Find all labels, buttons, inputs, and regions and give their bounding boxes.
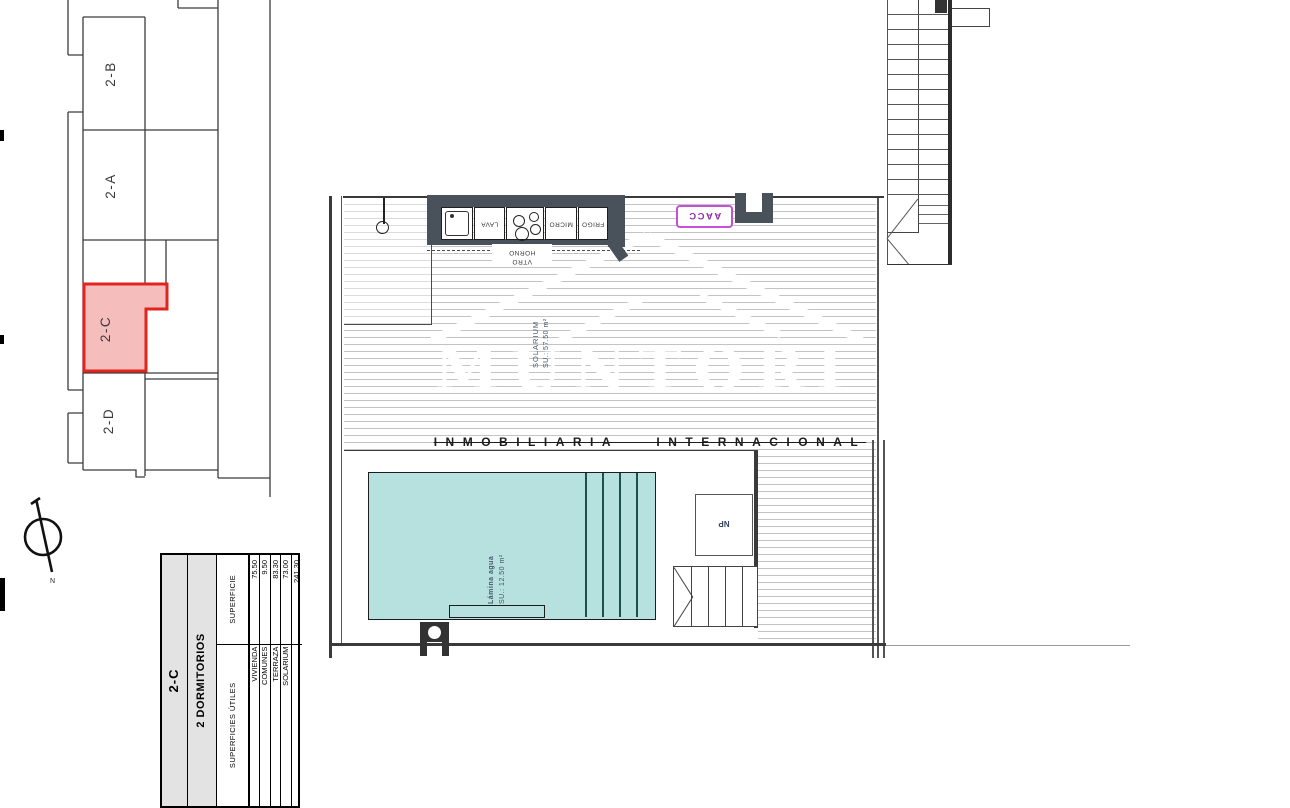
stair-divider xyxy=(918,0,919,233)
row-label: COMUNES xyxy=(260,644,269,806)
solarium-name: SOLARIUM xyxy=(530,284,541,368)
floor-plan-sheet: 2-B 2-A 2-C 2-D N MUNTORI INMOBILIARIA I… xyxy=(0,0,1290,698)
table-row: SOLARIUM 73.00 xyxy=(281,555,291,806)
staircase xyxy=(887,0,992,266)
pool-annotation: Lámina agua SU.: 12.50 m² xyxy=(486,516,510,604)
edge-mark xyxy=(0,578,5,611)
solarium-annotation: SOLARIUM SU.: 57.50 m² xyxy=(530,284,556,368)
ac-unit: AACC xyxy=(676,205,733,228)
key-unit-2a-label: 2-A xyxy=(103,173,118,199)
ac-unit-label: AACC xyxy=(678,210,731,221)
table-row-bedrooms: 2 DORMITORIOS xyxy=(188,555,217,806)
row-label xyxy=(292,644,302,806)
stair-left-wall xyxy=(887,0,888,265)
pool xyxy=(368,472,656,620)
stair-tread xyxy=(887,89,948,90)
stair-tread xyxy=(887,29,948,30)
wall-bottom xyxy=(329,643,886,646)
table-header-row: SUPERFICIES ÚTILES SUPERFICIE xyxy=(217,555,250,806)
edge-mark xyxy=(0,335,4,344)
kitchen-counter-top xyxy=(427,195,625,207)
vtro-label: VTRO xyxy=(492,257,552,266)
lamp-icon xyxy=(376,221,389,234)
pool-area: SU.: 12.50 m² xyxy=(497,516,508,604)
stair-tread xyxy=(887,74,948,75)
unit-2c-highlight xyxy=(84,284,167,371)
surface-table: 2-C 2 DORMITORIOS SUPERFICIES ÚTILES SUP… xyxy=(160,553,300,808)
shaft-opening xyxy=(746,193,762,212)
key-unit-2b-label: 2-B xyxy=(103,61,118,87)
row-label: TERRAZA xyxy=(271,644,280,806)
table-row: VIVIENDA 75.50 xyxy=(250,555,260,806)
burner-icon xyxy=(529,212,539,222)
shower-leg xyxy=(420,642,427,656)
shower-leg xyxy=(442,642,449,656)
stair-tread xyxy=(708,567,709,626)
solarium-area: SU.: 57.50 m² xyxy=(541,284,552,368)
stair-top-notch xyxy=(952,8,990,27)
terrace-corner-box xyxy=(344,198,432,325)
key-plan-outline xyxy=(68,0,270,497)
stair-tread xyxy=(742,567,743,626)
pool-step-line xyxy=(636,473,638,617)
stair-tread xyxy=(887,119,948,120)
wall-right-1 xyxy=(872,440,874,658)
stair-right-wall xyxy=(948,0,952,265)
row-value: 241.30 xyxy=(292,555,302,644)
stair-bottom-line xyxy=(887,264,952,265)
wall-left-outer xyxy=(329,196,332,658)
stair-tread xyxy=(887,164,948,165)
fridge-label: FRIGO xyxy=(579,220,607,227)
wall-right-upper xyxy=(877,198,879,441)
table-row-total: 241.30 xyxy=(292,555,302,806)
table-header-left: SUPERFICIES ÚTILES xyxy=(217,644,248,806)
key-unit-2d-label: 2-D xyxy=(101,408,116,434)
stair-tread xyxy=(887,179,948,180)
north-label: N xyxy=(50,578,55,585)
burner-icon xyxy=(530,224,541,235)
table-header-right: SUPERFICIE xyxy=(217,555,248,644)
table-row: TERRAZA 83.30 xyxy=(271,555,281,806)
wall-left-inner xyxy=(341,196,342,646)
shower-fixture xyxy=(420,622,449,656)
ground-line xyxy=(886,645,1130,646)
stair-tread xyxy=(887,149,948,150)
table-bedrooms: 2 DORMITORIOS xyxy=(188,555,216,806)
north-arrow-icon xyxy=(25,498,61,572)
cooktop xyxy=(506,207,544,240)
table-unit: 2-C xyxy=(162,555,187,806)
fridge: FRIGO xyxy=(578,207,608,240)
row-value: 9.50 xyxy=(260,555,269,644)
horno-label: HORNO xyxy=(492,248,552,257)
row-label: VIVIENDA xyxy=(250,644,259,806)
undercounter-labels: VTRO HORNO xyxy=(492,244,552,266)
watermark-subtitle: INMOBILIARIA INTERNACIONAL xyxy=(430,435,870,453)
sink-drain xyxy=(450,214,454,218)
stair-tread xyxy=(887,134,948,135)
shower-drain xyxy=(428,626,441,639)
stair-tread xyxy=(887,59,948,60)
wall-right-2 xyxy=(877,441,879,658)
np-box: NP xyxy=(695,494,753,556)
burner-icon xyxy=(515,227,529,241)
table-row: COMUNES 9.50 xyxy=(260,555,270,806)
stair-diagonal xyxy=(887,238,910,265)
table-row-unit: 2-C xyxy=(162,555,188,806)
dishwasher-label: LAVA xyxy=(475,220,504,227)
stair-tread xyxy=(919,223,948,224)
stair-tread xyxy=(887,104,948,105)
pool-stair xyxy=(673,566,758,627)
stair-tread xyxy=(887,194,948,195)
np-label: NP xyxy=(696,519,752,528)
pool-bench xyxy=(449,605,545,618)
kitchen-counter-left xyxy=(427,195,441,245)
key-plan: 2-B 2-A 2-C 2-D N xyxy=(0,0,290,600)
sink xyxy=(441,207,473,240)
pool-step-line xyxy=(602,473,604,617)
stair-tread xyxy=(887,14,948,15)
row-value: 75.50 xyxy=(250,555,259,644)
row-value: 73.00 xyxy=(281,555,290,644)
microwave: MICRO xyxy=(545,207,577,240)
wall-right-3 xyxy=(883,440,885,658)
dishwasher: LAVA xyxy=(474,207,505,240)
microwave-label: MICRO xyxy=(546,220,576,227)
pool-step-line xyxy=(619,473,621,617)
edge-mark xyxy=(0,130,4,141)
stair-tread xyxy=(887,44,948,45)
stair-tread xyxy=(919,205,948,206)
stair-tread xyxy=(919,214,948,215)
pool-step-line xyxy=(585,473,587,617)
watermark-brand: MUNTORI xyxy=(425,336,865,408)
stair-wall-cap xyxy=(935,0,947,13)
burner-icon xyxy=(513,215,525,227)
sink-basin xyxy=(445,211,469,236)
key-unit-2c-label: 2-C xyxy=(98,316,113,342)
stair-tread xyxy=(725,567,726,626)
row-label: SOLARIUM xyxy=(281,644,290,806)
pool-name: Lámina agua xyxy=(486,516,497,604)
row-value: 83.30 xyxy=(271,555,280,644)
